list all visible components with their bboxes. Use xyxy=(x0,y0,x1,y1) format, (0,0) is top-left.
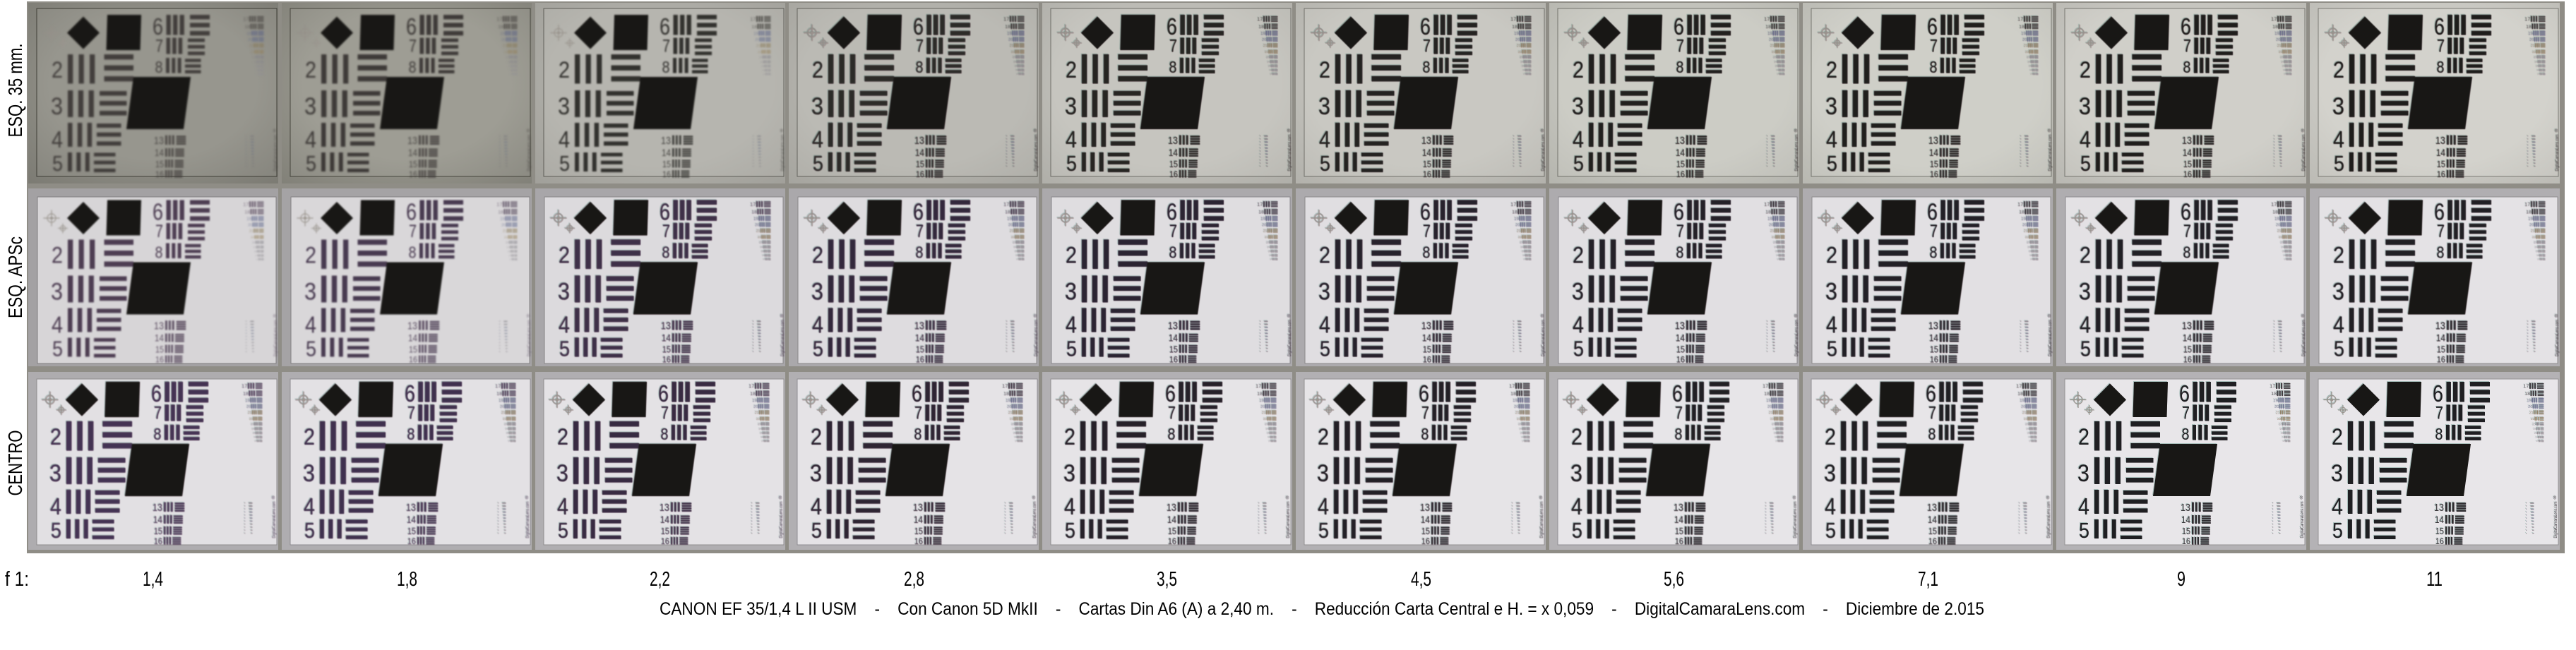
svg-text:4,5: 4,5 xyxy=(1411,568,1431,591)
svg-text:CENTRO: CENTRO xyxy=(4,431,26,496)
svg-text:2,2: 2,2 xyxy=(650,568,670,591)
svg-text:ESQ. 35 mm.: ESQ. 35 mm. xyxy=(4,44,26,138)
svg-text:7,1: 7,1 xyxy=(1918,568,1938,591)
svg-text:2,8: 2,8 xyxy=(904,568,924,591)
svg-text:1,8: 1,8 xyxy=(397,568,417,591)
svg-text:1,4: 1,4 xyxy=(143,568,163,591)
svg-text:11: 11 xyxy=(2426,568,2443,591)
svg-text:CANON EF 35/1,4 L II USM -: CANON EF 35/1,4 L II USM - Con Canon 5D … xyxy=(660,599,1984,619)
svg-text:ESQ. APSc: ESQ. APSc xyxy=(4,236,26,318)
svg-text:5,6: 5,6 xyxy=(1664,568,1684,591)
svg-text:f 1:: f 1: xyxy=(5,568,29,591)
svg-text:3,5: 3,5 xyxy=(1157,568,1177,591)
svg-text:9: 9 xyxy=(2177,568,2186,591)
